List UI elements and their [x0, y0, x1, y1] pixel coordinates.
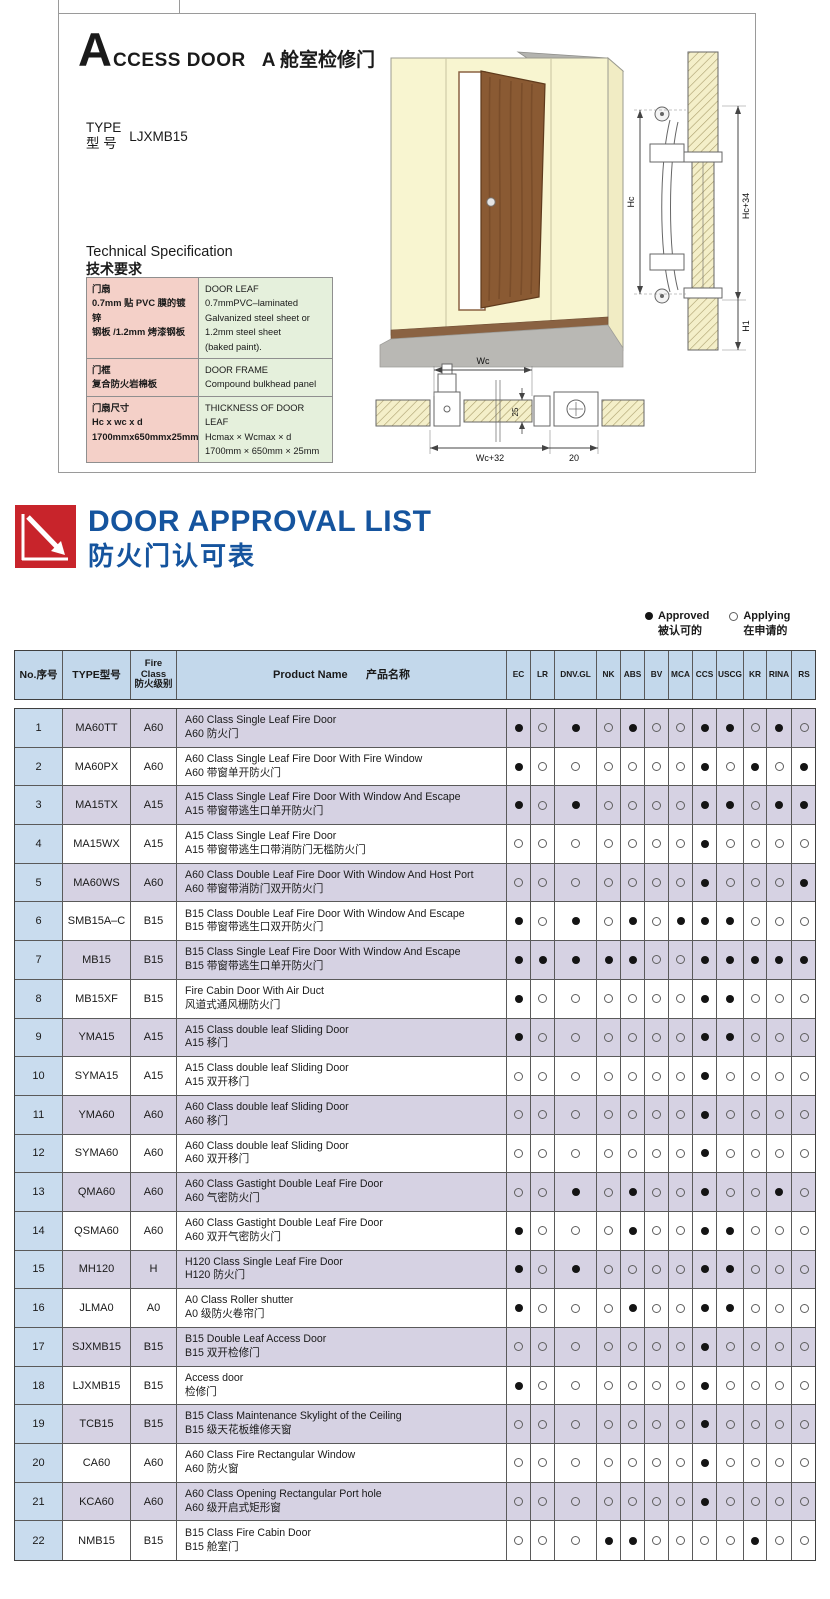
applying-dot-icon — [652, 955, 661, 964]
table-row: 15MH120HH120 Class Single Leaf Fire Door… — [15, 1251, 815, 1290]
approval-mark-cell — [645, 1135, 669, 1173]
approval-mark-cell — [767, 748, 792, 786]
applying-dot-icon — [800, 1226, 809, 1235]
applying-dot-icon — [676, 878, 685, 887]
spec-row: 门框 复合防火岩棉板DOOR FRAME Compound bulkhead p… — [87, 358, 332, 396]
approval-mark-cell — [621, 1367, 645, 1405]
row-type: MA60PX — [63, 748, 131, 786]
applying-dot-icon — [514, 1188, 523, 1197]
approved-dot-icon — [701, 1033, 709, 1041]
approval-mark-cell — [645, 1096, 669, 1134]
approval-header-row: No.序号 TYPE型号 Fire Class 防火级别 Product Nam… — [15, 651, 815, 699]
approval-mark-cell — [669, 1135, 693, 1173]
approval-mark-cell — [645, 1521, 669, 1560]
applying-dot-icon — [652, 1497, 661, 1506]
applying-dot-icon — [604, 1497, 613, 1506]
approval-mark-cell — [507, 1096, 531, 1134]
applying-dot-icon — [571, 1342, 580, 1351]
applying-dot-icon — [676, 1458, 685, 1467]
applying-dot-icon — [604, 917, 613, 926]
cert-col-header: EC — [507, 651, 531, 699]
applying-dot-icon — [775, 1072, 784, 1081]
approval-mark-cell — [792, 1212, 816, 1250]
approval-mark-cell — [645, 709, 669, 747]
applying-dot-icon — [726, 1149, 735, 1158]
approval-mark-cell — [744, 1328, 767, 1366]
applying-dot-icon — [676, 1188, 685, 1197]
approved-dot-icon — [751, 1537, 759, 1545]
applying-dot-icon — [726, 1342, 735, 1351]
applying-dot-icon — [628, 1381, 637, 1390]
approved-dot-icon — [572, 1265, 580, 1273]
approval-mark-cell — [645, 1405, 669, 1443]
approval-mark-cell — [693, 1483, 717, 1521]
approval-mark-cell — [621, 1212, 645, 1250]
applying-dot-icon — [751, 1381, 760, 1390]
applying-dot-icon — [538, 1226, 547, 1235]
product-name-cn: A60 气密防火门 — [185, 1192, 260, 1206]
approved-dot-icon — [751, 763, 759, 771]
applying-dot-icon — [751, 1188, 760, 1197]
row-no: 6 — [15, 902, 63, 940]
approval-mark-cell — [507, 1289, 531, 1327]
applying-dot-icon — [676, 723, 685, 732]
applying-dot-icon — [652, 1033, 661, 1042]
applying-dot-icon — [628, 1342, 637, 1351]
row-no: 10 — [15, 1057, 63, 1095]
row-fire-class: A0 — [131, 1289, 177, 1327]
approval-mark-cell — [744, 902, 767, 940]
applying-dot-icon — [775, 1342, 784, 1351]
table-row: 3MA15TXA15A15 Class Single Leaf Fire Doo… — [15, 786, 815, 825]
approval-mark-cell — [792, 1173, 816, 1211]
approved-dot-icon — [775, 801, 783, 809]
approval-mark-cell — [555, 825, 597, 863]
approval-mark-cell — [597, 1367, 621, 1405]
product-name-en: A15 Class Single Leaf Fire Door With Win… — [185, 791, 461, 805]
approval-mark-cell — [744, 1521, 767, 1560]
approved-dot-icon — [701, 1304, 709, 1312]
approval-mark-cell — [507, 825, 531, 863]
applying-dot-icon — [751, 1420, 760, 1429]
row-no: 20 — [15, 1444, 63, 1482]
approved-dot-icon — [701, 1149, 709, 1157]
applying-dot-icon — [514, 1420, 523, 1429]
approval-mark-cell — [792, 1135, 816, 1173]
approval-mark-cell — [555, 709, 597, 747]
row-fire-class: A60 — [131, 1483, 177, 1521]
approval-mark-cell — [621, 709, 645, 747]
applying-dot-icon — [628, 1265, 637, 1274]
approval-mark-cell — [531, 1019, 555, 1057]
approved-dot-icon — [726, 995, 734, 1003]
applying-dot-icon — [604, 801, 613, 810]
approved-dot-icon — [629, 917, 637, 925]
approval-mark-cell — [621, 1019, 645, 1057]
row-product-name: B15 Double Leaf Access DoorB15 双开检修门 — [177, 1328, 507, 1366]
approval-mark-cell — [531, 941, 555, 979]
applying-dot-icon — [628, 762, 637, 771]
approval-mark-cell — [669, 980, 693, 1018]
approval-mark-cell — [717, 980, 744, 1018]
approval-mark-cell — [555, 1483, 597, 1521]
col-header-product: Product Name 产品名称 — [177, 651, 507, 699]
applying-dot-icon — [628, 1110, 637, 1119]
applying-dot-icon — [571, 1420, 580, 1429]
horizontal-section-drawing: Wc 25 Wc+32 20 — [372, 352, 647, 469]
approved-dot-icon — [800, 763, 808, 771]
type-label-cn: 型 号 — [86, 136, 121, 152]
approval-mark-cell — [597, 902, 621, 940]
legend-approved-cn: 被认可的 — [658, 624, 709, 639]
row-product-name: A60 Class Gastight Double Leaf Fire Door… — [177, 1212, 507, 1250]
approval-mark-cell — [744, 1251, 767, 1289]
approved-dot-icon — [800, 801, 808, 809]
approval-mark-cell — [669, 1521, 693, 1560]
tab-stub-left — [58, 0, 59, 13]
approval-mark-cell — [792, 1367, 816, 1405]
table-row: 12SYMA60A60A60 Class double leaf Sliding… — [15, 1135, 815, 1174]
approval-mark-cell — [507, 864, 531, 902]
tab-stub-right — [179, 0, 180, 13]
applying-dot-icon — [571, 839, 580, 848]
applying-dot-icon — [751, 1033, 760, 1042]
approval-mark-cell — [717, 1521, 744, 1560]
applying-dot-icon — [676, 955, 685, 964]
approval-mark-cell — [597, 864, 621, 902]
approval-mark-cell — [744, 980, 767, 1018]
approval-mark-cell — [717, 941, 744, 979]
approval-mark-cell — [744, 709, 767, 747]
approval-mark-cell — [767, 1057, 792, 1095]
applying-dot-icon — [775, 1110, 784, 1119]
applying-dot-icon — [604, 723, 613, 732]
approved-dot-icon — [701, 1343, 709, 1351]
approval-mark-cell — [693, 1444, 717, 1482]
applying-dot-icon — [726, 1072, 735, 1081]
approval-mark-cell — [744, 1019, 767, 1057]
approval-mark-cell — [531, 825, 555, 863]
approval-mark-cell — [597, 1289, 621, 1327]
approved-dot-icon — [605, 1537, 613, 1545]
row-no: 4 — [15, 825, 63, 863]
cert-col-header: RINA — [767, 651, 792, 699]
applying-dot-icon — [604, 878, 613, 887]
approval-mark-cell — [669, 1328, 693, 1366]
approval-mark-cell — [645, 1289, 669, 1327]
approved-dot-icon — [515, 1265, 523, 1273]
spec-cell-cn: 门框 复合防火岩棉板 — [87, 359, 199, 396]
applying-dot-icon — [800, 1033, 809, 1042]
right-bulkhead — [602, 400, 644, 426]
spec-cell-en: THICKNESS OF DOOR LEAF Hcmax × Wcmax × d… — [199, 397, 332, 463]
row-no: 1 — [15, 709, 63, 747]
approval-mark-cell — [597, 1057, 621, 1095]
approved-dot-icon — [701, 1111, 709, 1119]
approval-mark-cell — [693, 941, 717, 979]
spec-row: 门扇尺寸 Hc x wc x d 1700mmx650mmx25mmTHICKN… — [87, 396, 332, 463]
approval-mark-cell — [717, 1251, 744, 1289]
row-no: 12 — [15, 1135, 63, 1173]
applying-dot-icon — [726, 762, 735, 771]
approval-mark-cell — [792, 1019, 816, 1057]
row-type: SMB15A–C — [63, 902, 131, 940]
product-name-en: A15 Class Single Leaf Fire Door — [185, 830, 336, 844]
row-type: MA60WS — [63, 864, 131, 902]
approved-dot-icon — [629, 1537, 637, 1545]
type-block: TYPE 型 号 LJXMB15 — [86, 120, 188, 152]
approval-mark-cell — [531, 1367, 555, 1405]
table-row: 16JLMA0A0A0 Class Roller shutterA0 级防火卷帘… — [15, 1289, 815, 1328]
applying-dot-icon — [538, 1072, 547, 1081]
product-name-cn: B15 带窗带逃生口双开防火门 — [185, 921, 323, 935]
approval-mark-cell — [621, 1135, 645, 1173]
row-product-name: A60 Class Fire Rectangular WindowA60 防火窗 — [177, 1444, 507, 1482]
applying-dot-icon — [751, 1226, 760, 1235]
approval-mark-cell — [669, 786, 693, 824]
applying-dot-icon — [571, 762, 580, 771]
row-no: 18 — [15, 1367, 63, 1405]
approved-dot-icon — [515, 763, 523, 771]
product-name-cn: 检修门 — [185, 1386, 217, 1400]
applying-dot-icon — [571, 1226, 580, 1235]
approval-mark-cell — [767, 1367, 792, 1405]
approved-dot-icon — [701, 801, 709, 809]
applying-dot-icon — [775, 762, 784, 771]
catalog-page: A CCESS DOOR A 舱室检修门 TYPE 型 号 LJXMB15 Te… — [0, 0, 830, 1599]
dim-wc-plus: Wc+32 — [476, 453, 504, 463]
applying-dot-icon — [726, 1420, 735, 1429]
dim-wc: Wc — [477, 356, 490, 366]
applying-dot-icon — [604, 1265, 613, 1274]
door-leaf — [481, 71, 545, 308]
approved-dot-icon — [775, 956, 783, 964]
approval-mark-cell — [507, 1483, 531, 1521]
approved-dot-icon — [572, 724, 580, 732]
applying-dot-icon — [729, 612, 738, 621]
approval-mark-cell — [767, 1405, 792, 1443]
approval-mark-cell — [669, 709, 693, 747]
approval-mark-cell — [507, 1251, 531, 1289]
approved-dot-icon — [726, 1265, 734, 1273]
approval-mark-cell — [645, 1328, 669, 1366]
row-fire-class: B15 — [131, 902, 177, 940]
product-name-en: A60 Class Opening Rectangular Port hole — [185, 1488, 382, 1502]
product-name-en: Access door — [185, 1372, 243, 1386]
product-name-cn: B15 级天花板维修天窗 — [185, 1424, 292, 1438]
approval-mark-cell — [531, 1405, 555, 1443]
approval-mark-cell — [717, 1096, 744, 1134]
applying-dot-icon — [628, 1033, 637, 1042]
approval-mark-cell — [645, 902, 669, 940]
approval-mark-cell — [767, 1135, 792, 1173]
applying-dot-icon — [538, 1342, 547, 1351]
applying-dot-icon — [751, 801, 760, 810]
approval-mark-cell — [717, 825, 744, 863]
row-type: MA60TT — [63, 709, 131, 747]
approval-mark-cell — [597, 709, 621, 747]
applying-dot-icon — [628, 994, 637, 1003]
approval-mark-cell — [555, 1521, 597, 1560]
approval-mark-cell — [693, 825, 717, 863]
approval-mark-cell — [597, 748, 621, 786]
dim-thickness: 25 — [511, 407, 520, 416]
applying-dot-icon — [652, 917, 661, 926]
table-row: 13QMA60A60A60 Class Gastight Double Leaf… — [15, 1173, 815, 1212]
table-row: 17SJXMB15B15B15 Double Leaf Access DoorB… — [15, 1328, 815, 1367]
applying-dot-icon — [751, 1110, 760, 1119]
product-name-cn: A60 防火门 — [185, 728, 239, 742]
approval-mark-cell — [621, 1096, 645, 1134]
approval-mark-cell — [597, 1328, 621, 1366]
row-product-name: H120 Class Single Leaf Fire DoorH120 防火门 — [177, 1251, 507, 1289]
row-product-name: A15 Class Single Leaf Fire DoorA15 带窗带逃生… — [177, 825, 507, 863]
row-type: SYMA60 — [63, 1135, 131, 1173]
approval-mark-cell — [621, 864, 645, 902]
approval-mark-cell — [792, 1251, 816, 1289]
approval-mark-cell — [767, 1521, 792, 1560]
approval-mark-cell — [597, 980, 621, 1018]
table-row: 11YMA60A60A60 Class double leaf Sliding … — [15, 1096, 815, 1135]
heading-initial: A — [78, 26, 111, 73]
approval-mark-cell — [555, 1367, 597, 1405]
approved-dot-icon — [701, 1188, 709, 1196]
approval-mark-cell — [621, 786, 645, 824]
approval-mark-cell — [555, 980, 597, 1018]
applying-dot-icon — [652, 1265, 661, 1274]
approved-dot-icon — [726, 801, 734, 809]
spec-cell-cn: 门扇 0.7mm 贴 PVC 膜的镀锌 钢板 /1.2mm 烤漆钢板 — [87, 278, 199, 358]
approval-mark-cell — [621, 1483, 645, 1521]
approval-mark-cell — [621, 1057, 645, 1095]
table-row: 5MA60WSA60A60 Class Double Leaf Fire Doo… — [15, 864, 815, 903]
approved-dot-icon — [645, 612, 653, 620]
approved-dot-icon — [572, 917, 580, 925]
approved-dot-icon — [726, 724, 734, 732]
approved-dot-icon — [515, 1227, 523, 1235]
approved-dot-icon — [751, 956, 759, 964]
product-name-en: A60 Class double leaf Sliding Door — [185, 1140, 349, 1154]
approval-mark-cell — [717, 1483, 744, 1521]
applying-dot-icon — [571, 1072, 580, 1081]
legend-applying-cn: 在申请的 — [743, 624, 790, 639]
approval-mark-cell — [597, 1521, 621, 1560]
approval-mark-cell — [767, 1483, 792, 1521]
approval-mark-cell — [767, 1328, 792, 1366]
legend-approved-en: Approved — [658, 609, 709, 624]
product-name-en: A60 Class double leaf Sliding Door — [185, 1101, 349, 1115]
approval-mark-cell — [767, 1096, 792, 1134]
approval-mark-cell — [621, 1173, 645, 1211]
legend-applying: Applying 在申请的 — [729, 609, 790, 639]
applying-dot-icon — [775, 917, 784, 926]
cert-col-header: NK — [597, 651, 621, 699]
approval-mark-cell — [531, 1251, 555, 1289]
row-type: MB15XF — [63, 980, 131, 1018]
product-name-cn: A15 带窗带逃生口单开防火门 — [185, 805, 323, 819]
approval-mark-cell — [792, 1096, 816, 1134]
applying-dot-icon — [514, 1497, 523, 1506]
approved-dot-icon — [515, 801, 523, 809]
approval-mark-cell — [645, 1212, 669, 1250]
approval-mark-cell — [792, 1405, 816, 1443]
applying-dot-icon — [652, 1536, 661, 1545]
approval-mark-cell — [669, 1173, 693, 1211]
approval-mark-cell — [621, 941, 645, 979]
approval-mark-cell — [792, 980, 816, 1018]
approval-mark-cell — [597, 1444, 621, 1482]
approval-mark-cell — [531, 748, 555, 786]
cert-col-header: RS — [792, 651, 816, 699]
approval-mark-cell — [597, 1212, 621, 1250]
applying-dot-icon — [800, 1149, 809, 1158]
row-type: KCA60 — [63, 1483, 131, 1521]
table-row: 21KCA60A60A60 Class Opening Rectangular … — [15, 1483, 815, 1522]
applying-dot-icon — [751, 1497, 760, 1506]
product-name-en: H120 Class Single Leaf Fire Door — [185, 1256, 343, 1270]
approved-dot-icon — [701, 1265, 709, 1273]
approval-mark-cell — [792, 1521, 816, 1560]
applying-dot-icon — [676, 994, 685, 1003]
approval-mark-cell — [621, 748, 645, 786]
applying-dot-icon — [538, 1188, 547, 1197]
row-product-name: A60 Class Double Leaf Fire Door With Win… — [177, 864, 507, 902]
door-illustration-svg — [378, 45, 626, 370]
applying-dot-icon — [652, 1342, 661, 1351]
row-type: TCB15 — [63, 1405, 131, 1443]
approval-mark-cell — [717, 748, 744, 786]
applying-dot-icon — [775, 1304, 784, 1313]
applying-dot-icon — [538, 1033, 547, 1042]
applying-dot-icon — [571, 1497, 580, 1506]
row-fire-class: B15 — [131, 1367, 177, 1405]
approval-mark-cell — [507, 786, 531, 824]
col-header-no: No.序号 — [15, 651, 63, 699]
approval-mark-cell — [717, 1057, 744, 1095]
applying-dot-icon — [676, 1226, 685, 1235]
approval-mark-cell — [693, 864, 717, 902]
approved-dot-icon — [701, 1498, 709, 1506]
applying-dot-icon — [800, 1072, 809, 1081]
applying-dot-icon — [538, 762, 547, 771]
approval-mark-cell — [645, 1444, 669, 1482]
approval-mark-cell — [597, 1405, 621, 1443]
door-knob — [487, 198, 495, 206]
approval-mark-cell — [717, 1212, 744, 1250]
applying-dot-icon — [604, 1149, 613, 1158]
applying-dot-icon — [676, 1149, 685, 1158]
vertical-section-svg: Hc Hc+34 H1 — [626, 48, 756, 353]
cert-col-header: USCG — [717, 651, 744, 699]
approval-mark-cell — [669, 1019, 693, 1057]
approval-mark-cell — [645, 1483, 669, 1521]
applying-dot-icon — [538, 1110, 547, 1119]
approval-title-en: DOOR APPROVAL LIST — [88, 505, 431, 538]
applying-dot-icon — [726, 1458, 735, 1467]
product-name-cn: 风道式通风栅防火门 — [185, 999, 280, 1013]
product-name-cn: A60 防火窗 — [185, 1463, 239, 1477]
product-name-cn: A15 双开移门 — [185, 1076, 249, 1090]
product-name-en: A60 Class Single Leaf Fire Door — [185, 714, 336, 728]
product-name-en: A15 Class double leaf Sliding Door — [185, 1024, 349, 1038]
row-no: 7 — [15, 941, 63, 979]
approval-mark-cell — [597, 1019, 621, 1057]
approved-dot-icon — [701, 995, 709, 1003]
row-fire-class: A60 — [131, 1212, 177, 1250]
row-product-name: A15 Class double leaf Sliding DoorA15 移门 — [177, 1019, 507, 1057]
applying-dot-icon — [676, 1265, 685, 1274]
product-name-cn: B15 双开检修门 — [185, 1347, 260, 1361]
